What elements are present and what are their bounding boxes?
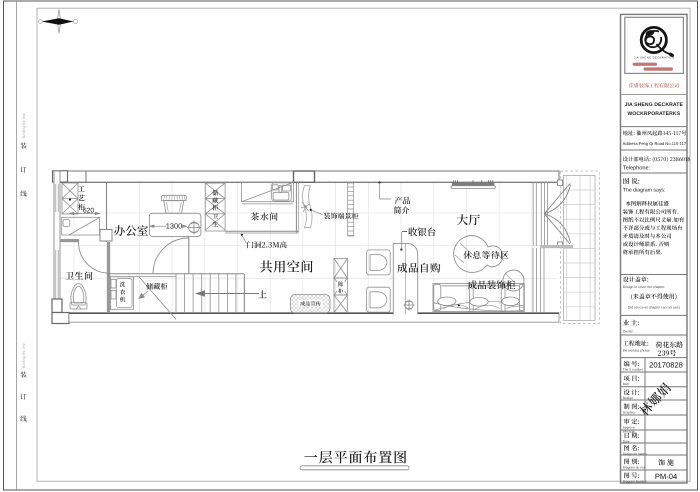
svg-text:JIA SHENG DECKRATE: JIA SHENG DECKRATE: [625, 102, 684, 108]
svg-text:PM-04: PM-04: [655, 472, 677, 481]
svg-text:Diagram do not: Diagram do not: [623, 465, 645, 469]
svg-text:Date: Date: [623, 439, 630, 443]
svg-text:efficacily: efficacily: [623, 429, 636, 433]
svg-text:Design to cover the chapter:: Design to cover the chapter:: [623, 285, 665, 289]
svg-text:WOCKRPORATERKS: WOCKRPORATERKS: [627, 111, 680, 117]
svg-text:Item: Item: [623, 382, 630, 386]
svg-text:Binding the line: Binding the line: [22, 343, 26, 368]
svg-text:Address:Feng Qi Road No.115-11: Address:Feng Qi Road No.115-117: [623, 141, 687, 146]
svg-text:Diagram Number: Diagram Number: [623, 479, 648, 483]
svg-text:the working phrase: the working phrase: [623, 349, 650, 353]
svg-text:Telephone:: Telephone:: [623, 165, 651, 172]
svg-text:The X number: The X number: [623, 368, 644, 372]
svg-text:1300: 1300: [166, 222, 182, 231]
svg-text:Design for Name:: Design for Name:: [623, 452, 648, 456]
svg-text:Binding the line: Binding the line: [22, 113, 26, 138]
svg-text:20170828: 20170828: [649, 360, 683, 369]
svg-text:JIA SHENG DECKRATION: JIA SHENG DECKRATION: [634, 57, 674, 60]
svg-text:Did not cover chapter can not: Did not cover chapter can not use): [628, 306, 680, 310]
svg-text:Graphics: Graphics: [623, 410, 636, 414]
svg-text:Owner:: Owner:: [623, 330, 634, 334]
svg-text:The diagram says:: The diagram says:: [623, 188, 666, 194]
svg-text:Design: Design: [623, 396, 633, 400]
svg-text:620: 620: [83, 207, 95, 214]
